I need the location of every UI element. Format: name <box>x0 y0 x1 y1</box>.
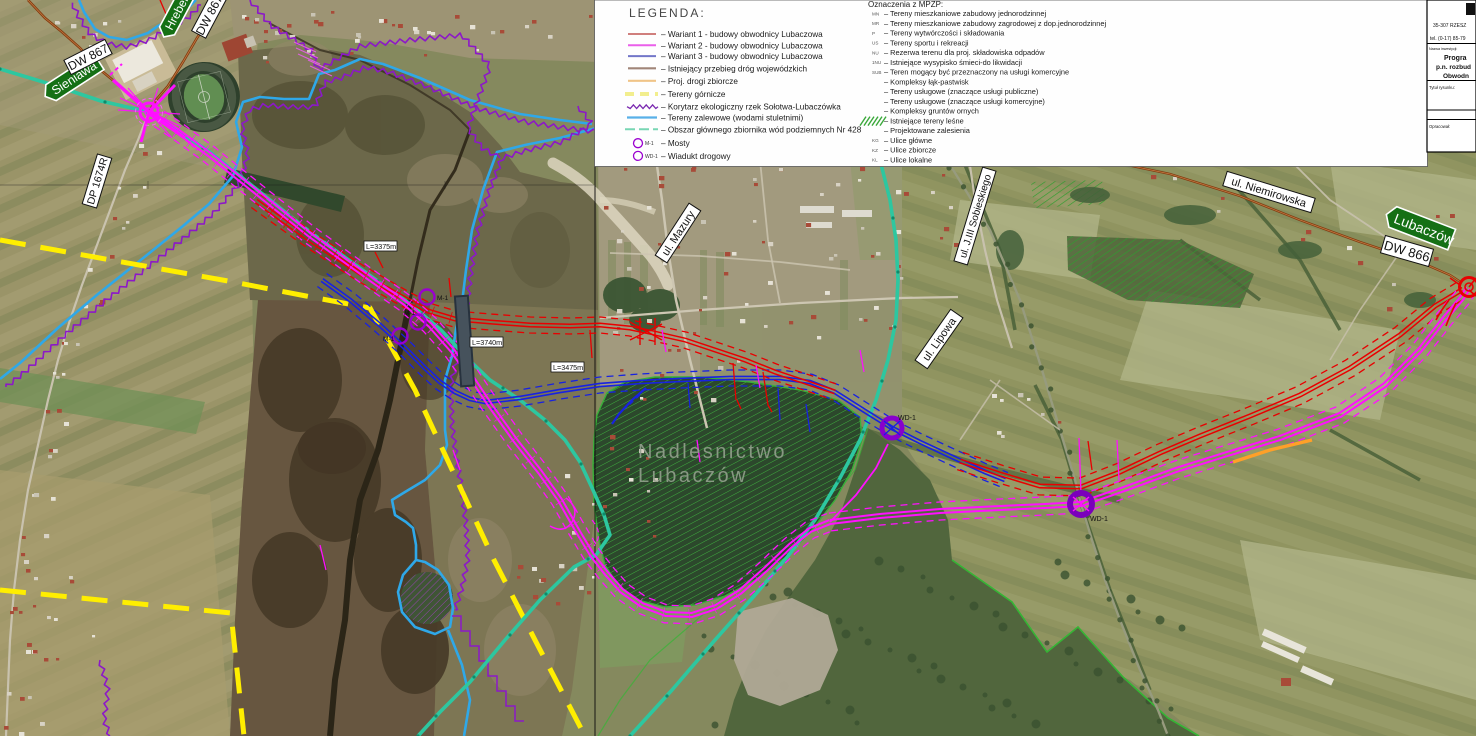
svg-text:– Wariant 2 - budowy obwodnicy: – Wariant 2 - budowy obwodnicy Lubaczowa <box>661 41 823 50</box>
svg-text:WD-1: WD-1 <box>645 154 658 160</box>
svg-text:M-1: M-1 <box>437 295 449 302</box>
svg-text:tel. (0-17) 85-79: tel. (0-17) 85-79 <box>1430 36 1466 42</box>
svg-text:L=3740m: L=3740m <box>472 338 502 347</box>
svg-text:1NU: 1NU <box>872 60 881 65</box>
svg-text:– Tereny górnicze: – Tereny górnicze <box>661 90 726 99</box>
svg-text:WD-1: WD-1 <box>898 415 916 422</box>
svg-text:LEGENDA:: LEGENDA: <box>629 6 706 20</box>
svg-text:KL: KL <box>872 158 878 163</box>
svg-text:– Tereny usługowe (znaczące us: – Tereny usługowe (znaczące usługi publi… <box>884 87 1038 96</box>
svg-text:WD-1: WD-1 <box>1090 516 1108 523</box>
svg-text:M-1: M-1 <box>404 310 416 317</box>
svg-text:L=3375m: L=3375m <box>366 242 396 251</box>
svg-text:p.n. rozbud: p.n. rozbud <box>1436 64 1471 71</box>
svg-text:– Obszar głównego zbiornika wó: – Obszar głównego zbiornika wód podziemn… <box>661 125 862 134</box>
svg-text:– Ulice główne: – Ulice główne <box>884 136 932 145</box>
svg-text:– Tereny mieszkaniowe zabudowy: – Tereny mieszkaniowe zabudowy jednorodz… <box>884 9 1046 18</box>
svg-text:Nadlesnictwo: Nadlesnictwo <box>638 441 787 463</box>
svg-text:MN: MN <box>872 11 879 16</box>
svg-text:– Tereny wytwórczości i składo: – Tereny wytwórczości i składowania <box>884 29 1005 38</box>
svg-text:NU: NU <box>872 50 879 55</box>
svg-text:Opracował:: Opracował: <box>1429 124 1450 129</box>
svg-text:M-1: M-1 <box>645 141 654 147</box>
svg-text:– Tereny usługowe (znaczące us: – Tereny usługowe (znaczące usługi komer… <box>884 97 1045 106</box>
svg-text:Nazwa inwestycji:: Nazwa inwestycji: <box>1429 47 1457 51</box>
svg-text:– Projektowane zalesienia: – Projektowane zalesienia <box>884 126 971 135</box>
svg-text:SUB: SUB <box>872 70 881 75</box>
svg-text:M-1: M-1 <box>383 336 395 343</box>
svg-text:P: P <box>872 31 875 36</box>
svg-text:– Istniejące tereny leśne: – Istniejące tereny leśne <box>884 116 964 125</box>
svg-text:– Kompleksy gruntów ornych: – Kompleksy gruntów ornych <box>884 107 979 116</box>
svg-text:– Tereny mieszkaniowe zabudowy: – Tereny mieszkaniowe zabudowy zagrodowe… <box>884 19 1106 28</box>
svg-text:35-307 RZESZ: 35-307 RZESZ <box>1433 23 1466 29</box>
svg-text:Obwodn: Obwodn <box>1443 73 1469 80</box>
svg-text:– Korytarz ekologiczny rzek So: – Korytarz ekologiczny rzek Sołotwa-Luba… <box>661 103 841 112</box>
svg-text:Lubaczów: Lubaczów <box>638 465 748 487</box>
svg-text:– Kompleksy łąk-pastwisk: – Kompleksy łąk-pastwisk <box>884 77 969 86</box>
svg-text:– Wariant 3 - budowy obwodnicy: – Wariant 3 - budowy obwodnicy Lubaczowa <box>661 52 823 61</box>
svg-text:US: US <box>872 41 878 46</box>
svg-text:– Ulice lokalne: – Ulice lokalne <box>884 155 932 164</box>
svg-text:KZ: KZ <box>872 148 878 153</box>
svg-text:– Teren mogący być przeznaczon: – Teren mogący być przeznaczony na usług… <box>884 68 1069 77</box>
svg-text:– Mosty: – Mosty <box>661 139 691 148</box>
svg-text:– Tereny zalewowe (wodami stul: – Tereny zalewowe (wodami stuletnimi) <box>661 114 804 123</box>
svg-text:– Rezerwa terenu dla proj. skł: – Rezerwa terenu dla proj. składowiska o… <box>884 48 1045 57</box>
svg-text:MR: MR <box>872 21 880 26</box>
svg-text:– Wariant 1 - budowy obwodnicy: – Wariant 1 - budowy obwodnicy Lubaczowa <box>661 30 823 39</box>
svg-text:L=3475m: L=3475m <box>553 363 583 372</box>
svg-text:– Ulice zbiorcze: – Ulice zbiorcze <box>884 146 936 155</box>
svg-text:– Istniejące wysypisko śmieci-: – Istniejące wysypisko śmieci-do likwida… <box>884 58 1022 67</box>
svg-text:Tytuł rysunku:: Tytuł rysunku: <box>1429 85 1455 90</box>
svg-text:– Istniejący przebieg dróg woj: – Istniejący przebieg dróg wojewódzkich <box>661 64 808 73</box>
svg-text:– Tereny sportu i rekreacji: – Tereny sportu i rekreacji <box>884 38 969 47</box>
svg-text:– Proj. drogi zbiorcze: – Proj. drogi zbiorcze <box>661 77 738 86</box>
svg-text:– Wiadukt drogowy: – Wiadukt drogowy <box>661 152 732 161</box>
svg-text:Progra: Progra <box>1444 55 1467 62</box>
svg-text:KG: KG <box>872 138 879 143</box>
svg-text:Oznaczenia z MPZP:: Oznaczenia z MPZP: <box>868 0 943 9</box>
